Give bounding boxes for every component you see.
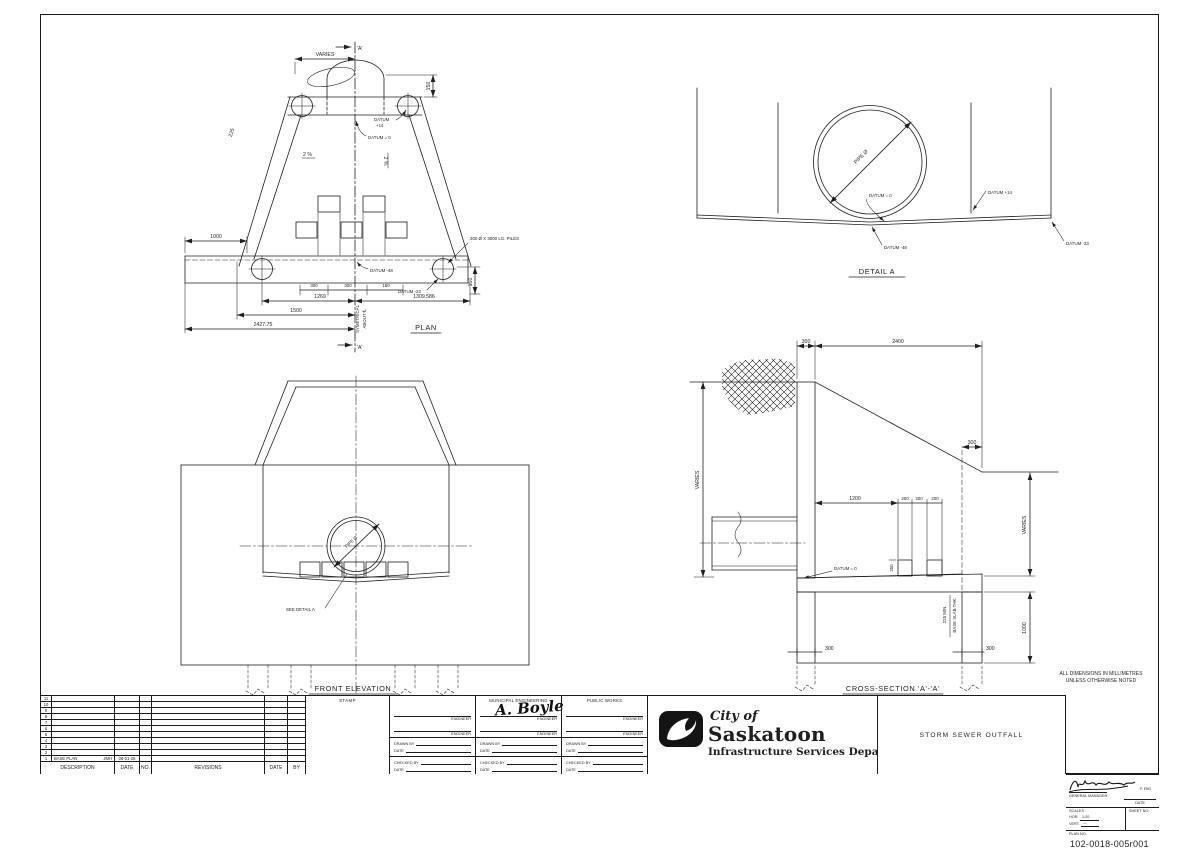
vert-scale-value: —: [1081, 821, 1099, 827]
cs-dim-200-v: 200: [889, 564, 894, 572]
date-label: DATE: [480, 768, 490, 772]
sheet-no-label: SHEET NO.: [1129, 809, 1149, 813]
notes-line2: UNLESS OTHERWISE NOTED: [1040, 678, 1162, 685]
cs-dim-200-b: 200: [915, 496, 923, 501]
date-label: DATE: [566, 749, 576, 753]
checked-by-label: CHECKED BY: [394, 761, 419, 765]
approval-column-blank: ENGINEER ENGINEER DRAWN BY DATE CHECKED …: [390, 696, 476, 774]
plan-dim-2427: 2427.75: [254, 322, 273, 328]
front-elevation-title: FRONT ELEVATION: [315, 684, 392, 693]
plan-dim-300-a: 300: [310, 283, 318, 288]
front-elevation-view: PIPE Ø SEE DETAIL A FRONT ELEVATION: [181, 376, 529, 695]
cs-dim-200-c: 200: [931, 496, 939, 501]
header-no: NO.: [140, 762, 152, 774]
checked-by-label: CHECKED BY: [566, 761, 591, 765]
drawn-by-label: DRAWN BY: [566, 742, 586, 746]
engineer-signature-line: ENGINEER: [562, 722, 647, 737]
plan-section-marker-top: 'A': [357, 46, 362, 52]
detail-a-datum-minus23: DATUM -23: [1066, 241, 1089, 246]
plan-slope-left: 2 %: [303, 152, 312, 158]
cs-dim-1200: 1200: [849, 496, 861, 502]
plan-dim-1000: 1000: [210, 234, 222, 240]
plan-symmetrical-line1: SYMETRICAL: [355, 304, 360, 333]
drawing-canvas: 'A' VARIES 225 150 DATUM +14 DATUM = 0: [0, 0, 1200, 695]
approval-column-title: PUBLIC WORKS: [562, 696, 647, 707]
cs-dim-300-bot-left: 300: [825, 646, 834, 652]
plan-view: 'A' VARIES 225 150 DATUM +14 DATUM = 0: [185, 42, 519, 352]
cs-dim-1000: 1000: [1022, 622, 1028, 634]
saskatoon-logo: [659, 711, 705, 749]
plan-number: 102-0018-005r001: [1070, 839, 1149, 849]
hor-label: HOR.: [1069, 815, 1079, 819]
hor-scale-value: 1:20: [1080, 815, 1099, 821]
plan-dim-varies: VARIES: [316, 52, 335, 58]
scales-label: SCALES :: [1069, 809, 1086, 813]
cross-section-title: CROSS-SECTION 'A'-'A': [846, 684, 940, 693]
notes-line1: ALL DIMENSIONS IN MILLIMETRES: [1040, 671, 1162, 678]
general-manager-label: GENERAL MANAGER: [1069, 792, 1107, 798]
front-elevation-pipe-label: PIPE Ø: [344, 535, 359, 549]
header-date-2: DATE: [265, 762, 288, 774]
header-date: DATE: [115, 762, 140, 774]
date-label: DATE: [480, 749, 490, 753]
plan-slope-right: 2 %: [382, 157, 388, 166]
drawing-title: STORM SEWER OUTFALL: [878, 696, 1065, 774]
detail-a-datum-zero: DATUM = 0: [869, 193, 892, 198]
cs-dim-200-a: 200: [901, 496, 909, 501]
cs-datum-zero: DATUM = 0: [834, 566, 857, 571]
engineer-signature-line: ENGINEER: [562, 707, 647, 722]
plan-dim-150-top: 150: [426, 82, 432, 91]
date-label: DATE: [566, 768, 576, 772]
cs-slab-note-line1: 225 MIN: [942, 607, 947, 624]
detail-a-datum-plus14: DATUM +14: [988, 190, 1013, 195]
checked-by-box: CHECKED BY DATE: [390, 756, 475, 775]
approval-column-public-works: PUBLIC WORKS ENGINEER ENGINEER DRAWN BY …: [562, 696, 647, 774]
front-elevation-see-detail-a: SEE DETAIL A: [286, 607, 315, 612]
plan-no-label: PLAN NO.: [1069, 832, 1087, 836]
earth-hatch: [722, 358, 795, 415]
drawn-by-box: DRAWN BY DATE: [390, 737, 475, 756]
plan-piles-note: 300 Ø X 3000 LG. PILES: [470, 236, 519, 241]
drawn-by-label: DRAWN BY: [394, 742, 414, 746]
revision-description: BASE PLAN: [54, 756, 77, 761]
detail-a-title: DETAIL A: [859, 267, 895, 276]
agency-block: City of Saskatoon Infrastructure Service…: [648, 695, 878, 774]
checked-by-box: CHECKED BY DATE: [562, 756, 647, 775]
drawing-title-cell: STORM SEWER OUTFALL: [878, 695, 1066, 774]
revision-by: JMH: [103, 756, 112, 761]
cs-dim-300-mid: 300: [968, 440, 977, 446]
plan-dim-1269: 1269: [314, 294, 326, 300]
cs-varies-left: VARIES: [695, 470, 701, 489]
header-by: BY: [288, 762, 305, 774]
p-eng-label: P. ENG: [1140, 787, 1151, 791]
engineer-signature-line: ENGINEER: [390, 707, 475, 722]
engineer-signature-line: ENGINEER: [476, 722, 561, 737]
checked-by-label: CHECKED BY: [480, 761, 505, 765]
cs-varies-right: VARIES: [1022, 515, 1028, 534]
plan-datum-minus48: DATUM -48: [370, 268, 393, 273]
vert-label: VERT.: [1069, 822, 1080, 826]
cross-section-view: 300 2400 VARIES 300 VARIES 1000: [690, 339, 1058, 694]
stamp-cell: STAMP: [306, 695, 390, 774]
agency-name: Saskatoon: [708, 722, 826, 746]
revisions-header-row: DESCRIPTION DATE NO. REVISIONS DATE BY: [41, 762, 305, 774]
stamp-label: STAMP: [306, 696, 389, 703]
plan-dim-300-b: 300: [344, 283, 352, 288]
drawn-by-box: DRAWN BY DATE: [476, 737, 561, 756]
date-label: DATE: [394, 749, 404, 753]
drawn-by-box: DRAWN BY DATE: [562, 737, 647, 756]
drawn-by-label: DRAWN BY: [480, 742, 500, 746]
plan-dim-150-right: 150: [468, 278, 474, 287]
plan-datum-plus14-line2: +14: [376, 123, 384, 128]
plan-symmetrical-line2: ABOUT ℄: [362, 309, 367, 328]
detail-a-view: PIPE Ø DATUM = 0 DATUM +14 DATUM -48 DAT…: [697, 88, 1089, 277]
general-notes: ALL DIMENSIONS IN MILLIMETRES UNLESS OTH…: [1040, 671, 1162, 685]
plan-dim-225: 225: [228, 128, 236, 138]
plan-dim-150-mid: 150: [382, 283, 390, 288]
approval-number-block: GENERAL MANAGER P. ENG DATE SCALES : HOR…: [1066, 774, 1159, 853]
drawing-sheet: { "sheet": { "notes_line1": "ALL DIMENSI…: [0, 0, 1200, 777]
detail-a-pipe-label: PIPE Ø: [853, 149, 869, 165]
header-description: DESCRIPTION: [41, 762, 115, 774]
detail-a-datum-minus48: DATUM -48: [884, 245, 907, 250]
cs-dim-300-top: 300: [802, 339, 811, 345]
plan-title: PLAN: [415, 323, 437, 332]
plan-dim-1500: 1500: [290, 308, 302, 314]
cs-slab-note-line2: BASE SLAB THK.: [952, 597, 957, 632]
plan-dim-1309: 1309.586: [413, 294, 435, 300]
checked-by-box: CHECKED BY DATE: [476, 756, 561, 775]
header-revisions: REVISIONS: [152, 762, 265, 774]
approval-column-title: [390, 696, 475, 707]
cs-dim-2400: 2400: [892, 339, 904, 345]
date-label: DATE: [394, 768, 404, 772]
plan-datum-plus14-line1: DATUM: [374, 117, 390, 122]
engineer-signature-line: ENGINEER: [390, 722, 475, 737]
gm-date-label: DATE: [1124, 799, 1156, 805]
plan-datum-zero: DATUM = 0: [368, 135, 391, 140]
plan-section-marker-bottom: 'A': [357, 345, 362, 351]
cs-dim-300-bot-right: 300: [986, 646, 995, 652]
revisions-table: 11 10 9 8 7 6 5 4 3 2 1 BASE PLANJMH 06-…: [41, 695, 306, 774]
